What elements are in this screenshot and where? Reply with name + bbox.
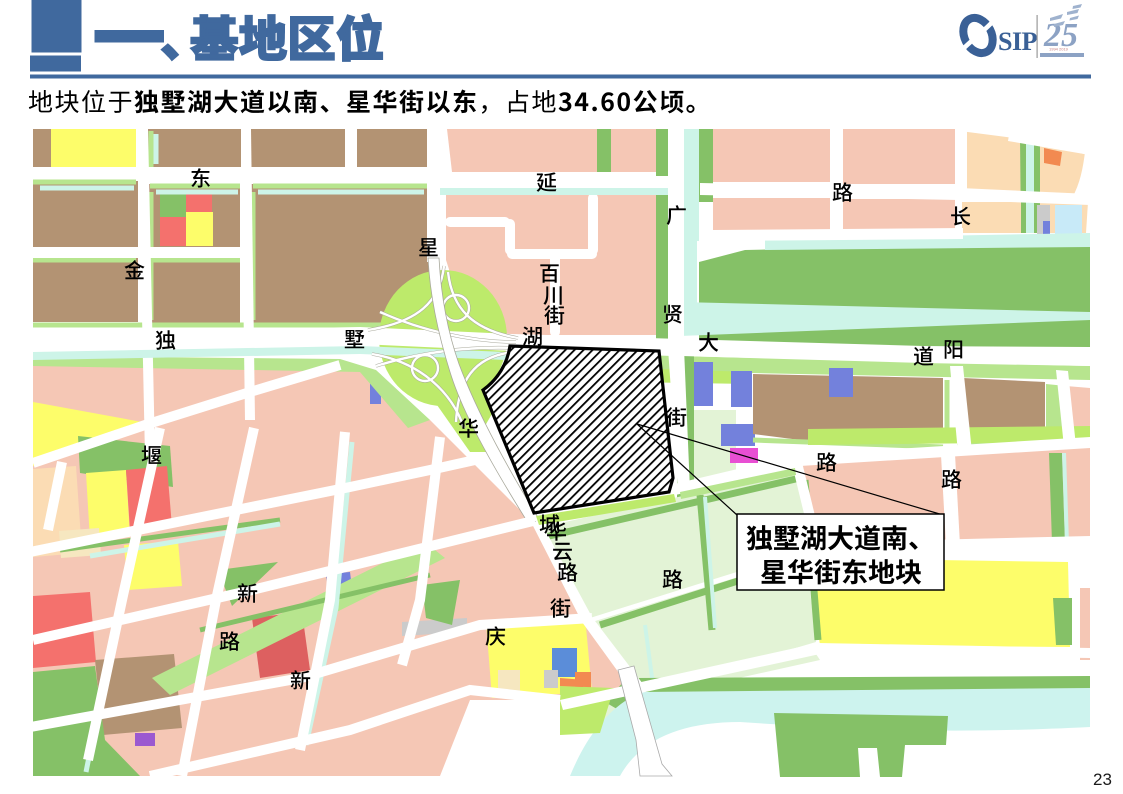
svg-text:23: 23 [1093,770,1112,789]
svg-text:1994 2019: 1994 2019 [1049,47,1069,52]
svg-text:SIP: SIP [998,27,1038,56]
